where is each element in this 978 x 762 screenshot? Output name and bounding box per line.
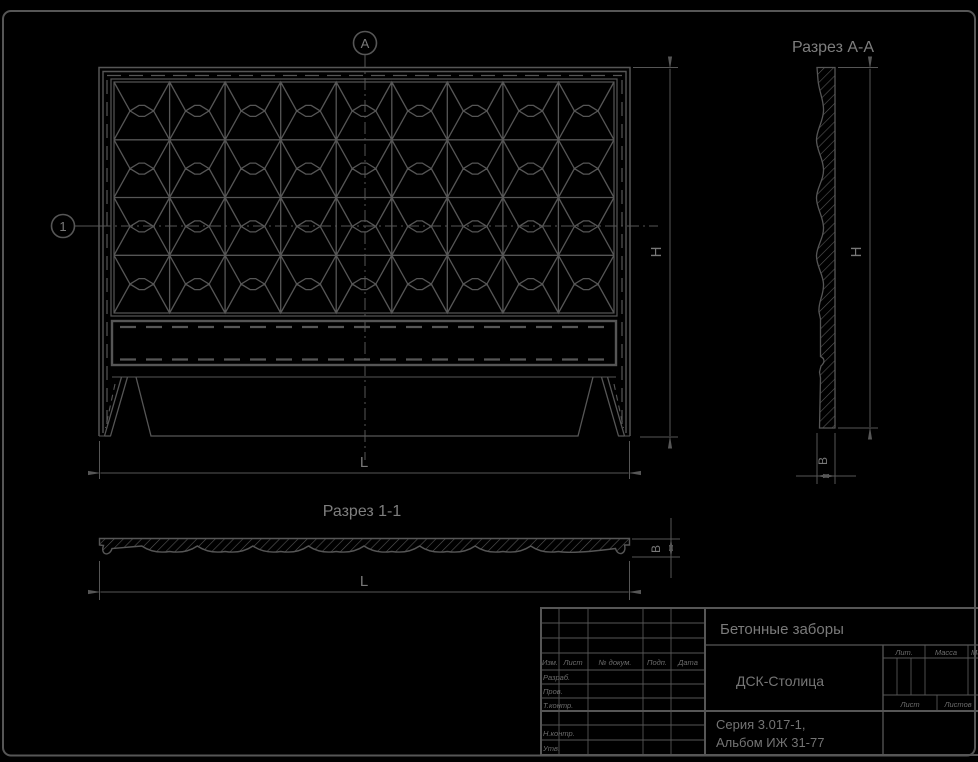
section-aa-profile [817, 68, 836, 429]
col-podp: Подп. [647, 658, 667, 667]
row-razrab: Разраб. [543, 673, 570, 682]
aa-thickness-dimension: В [796, 433, 856, 484]
col-izm: Изм. [542, 658, 558, 667]
series-line2: Альбом ИЖ 31-77 [716, 735, 824, 750]
section-aa-view: Разрез А-А H В [792, 39, 878, 484]
section-marker-a: А [354, 32, 377, 68]
row-marker-1: 1 [52, 215, 100, 238]
engineering-drawing: А 1 H L Разрез А-А H [0, 0, 978, 762]
section-marker-letter: А [361, 36, 370, 51]
label-masshtab: Масштаб [971, 648, 978, 657]
front-view: А 1 H L [52, 32, 679, 480]
title-block: Бетонные заборы ДСК-Столица Серия 3.017-… [541, 608, 978, 755]
s11-thickness-dimension: В [632, 518, 680, 578]
section-11-view: Разрез 1-1 В L [100, 503, 681, 600]
col-list: Лист [562, 658, 582, 667]
s11-dim-l-label: L [360, 573, 368, 590]
col-data: Дата [677, 658, 698, 667]
base-and-legs [105, 377, 625, 436]
section-11-profile [100, 539, 630, 554]
front-height-dimension: H [633, 68, 678, 438]
s11-length-dimension: L [100, 561, 630, 600]
series-line1: Серия 3.017-1, [716, 717, 805, 732]
section-11-title: Разрез 1-1 [323, 503, 402, 520]
drawing-sheet: А 1 H L Разрез А-А H [0, 0, 978, 762]
label-listov: Листов [943, 700, 971, 709]
relief-pattern [114, 82, 614, 313]
label-lit: Лит. [894, 648, 913, 657]
s11-dim-b-label: В [649, 545, 663, 553]
aa-dim-h-label: H [848, 247, 865, 258]
row-marker-number: 1 [59, 219, 66, 234]
row-prov: Пров. [543, 687, 563, 696]
aa-dim-b-label: В [816, 457, 830, 465]
label-massa: Масса [935, 648, 957, 657]
lower-band-dashes [120, 327, 608, 360]
dim-l-label: L [360, 454, 368, 471]
row-utv: Утв. [542, 744, 560, 753]
product-name: Бетонные заборы [720, 621, 844, 638]
row-n-kontr: Н.контр. [543, 729, 575, 738]
label-list2: Лист [899, 700, 919, 709]
section-aa-title: Разрез А-А [792, 39, 874, 56]
col-doc-num: № докум. [598, 658, 631, 667]
aa-height-dimension: H [838, 68, 878, 429]
organization-name: ДСК-Столица [736, 673, 824, 689]
row-t-kontr: Т.контр. [543, 701, 573, 710]
dim-h-label: H [648, 247, 665, 258]
